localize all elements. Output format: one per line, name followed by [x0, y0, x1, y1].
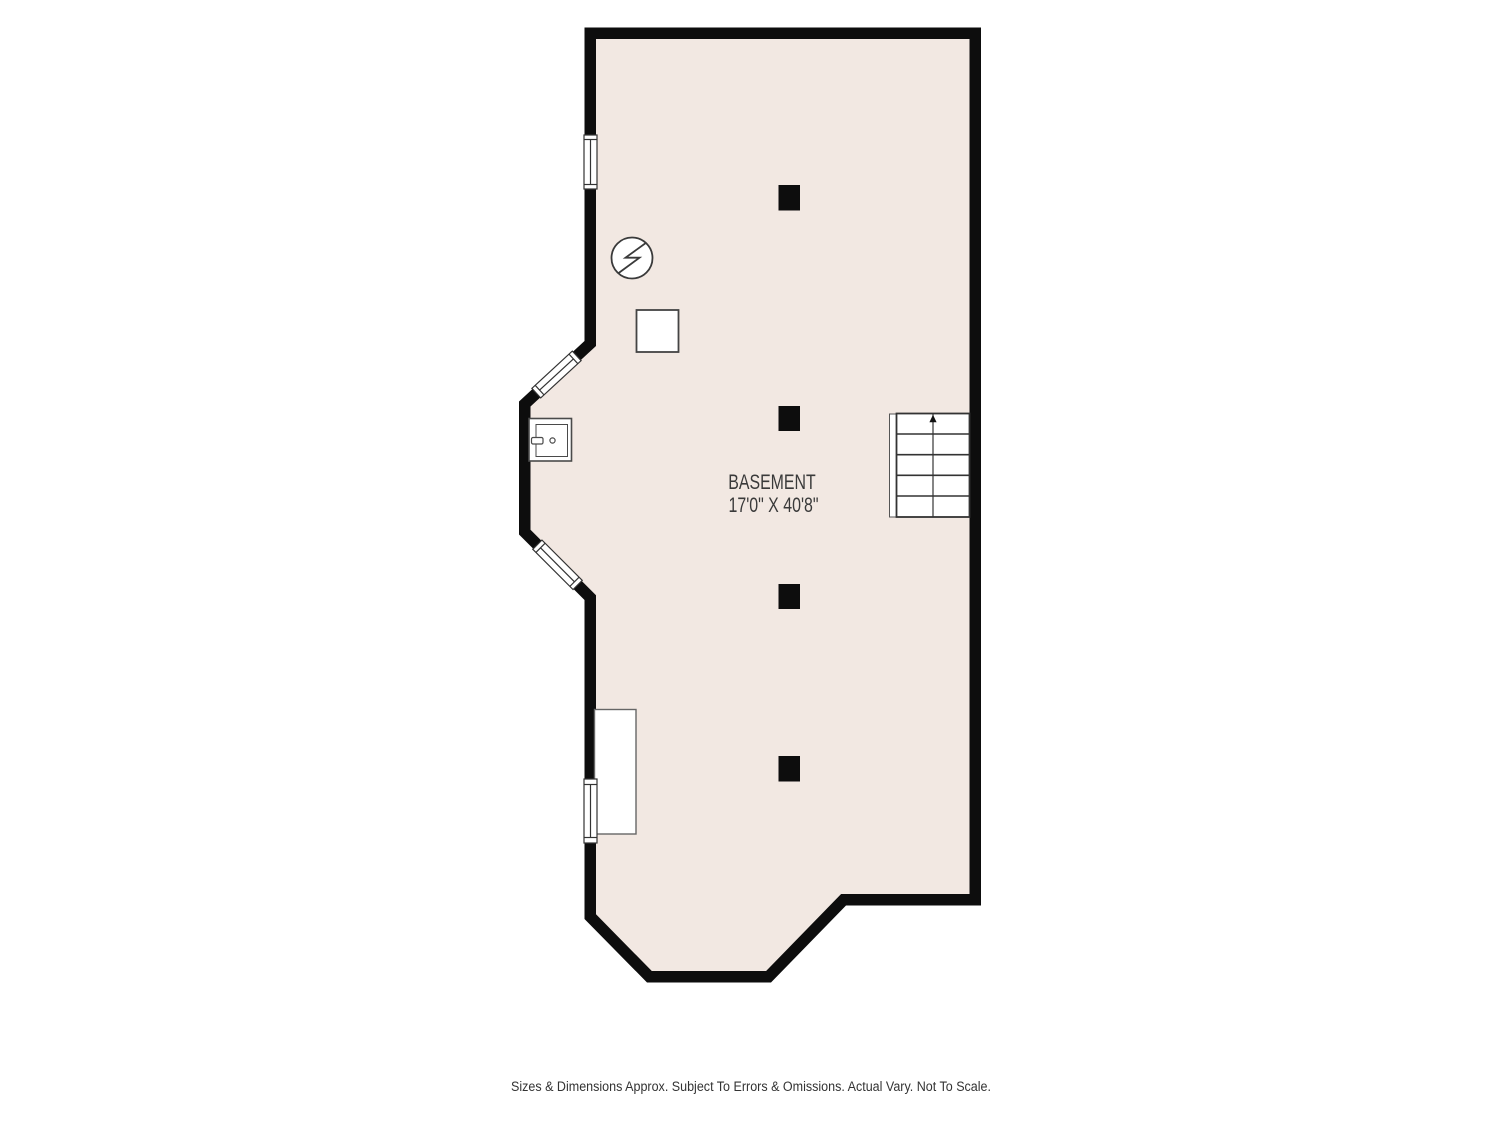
svg-text:BASEMENT: BASEMENT — [728, 471, 816, 494]
svg-text:17'0" X 40'8": 17'0" X 40'8" — [729, 494, 819, 517]
svg-text:Sizes & Dimensions Approx. Sub: Sizes & Dimensions Approx. Subject To Er… — [511, 1079, 991, 1094]
